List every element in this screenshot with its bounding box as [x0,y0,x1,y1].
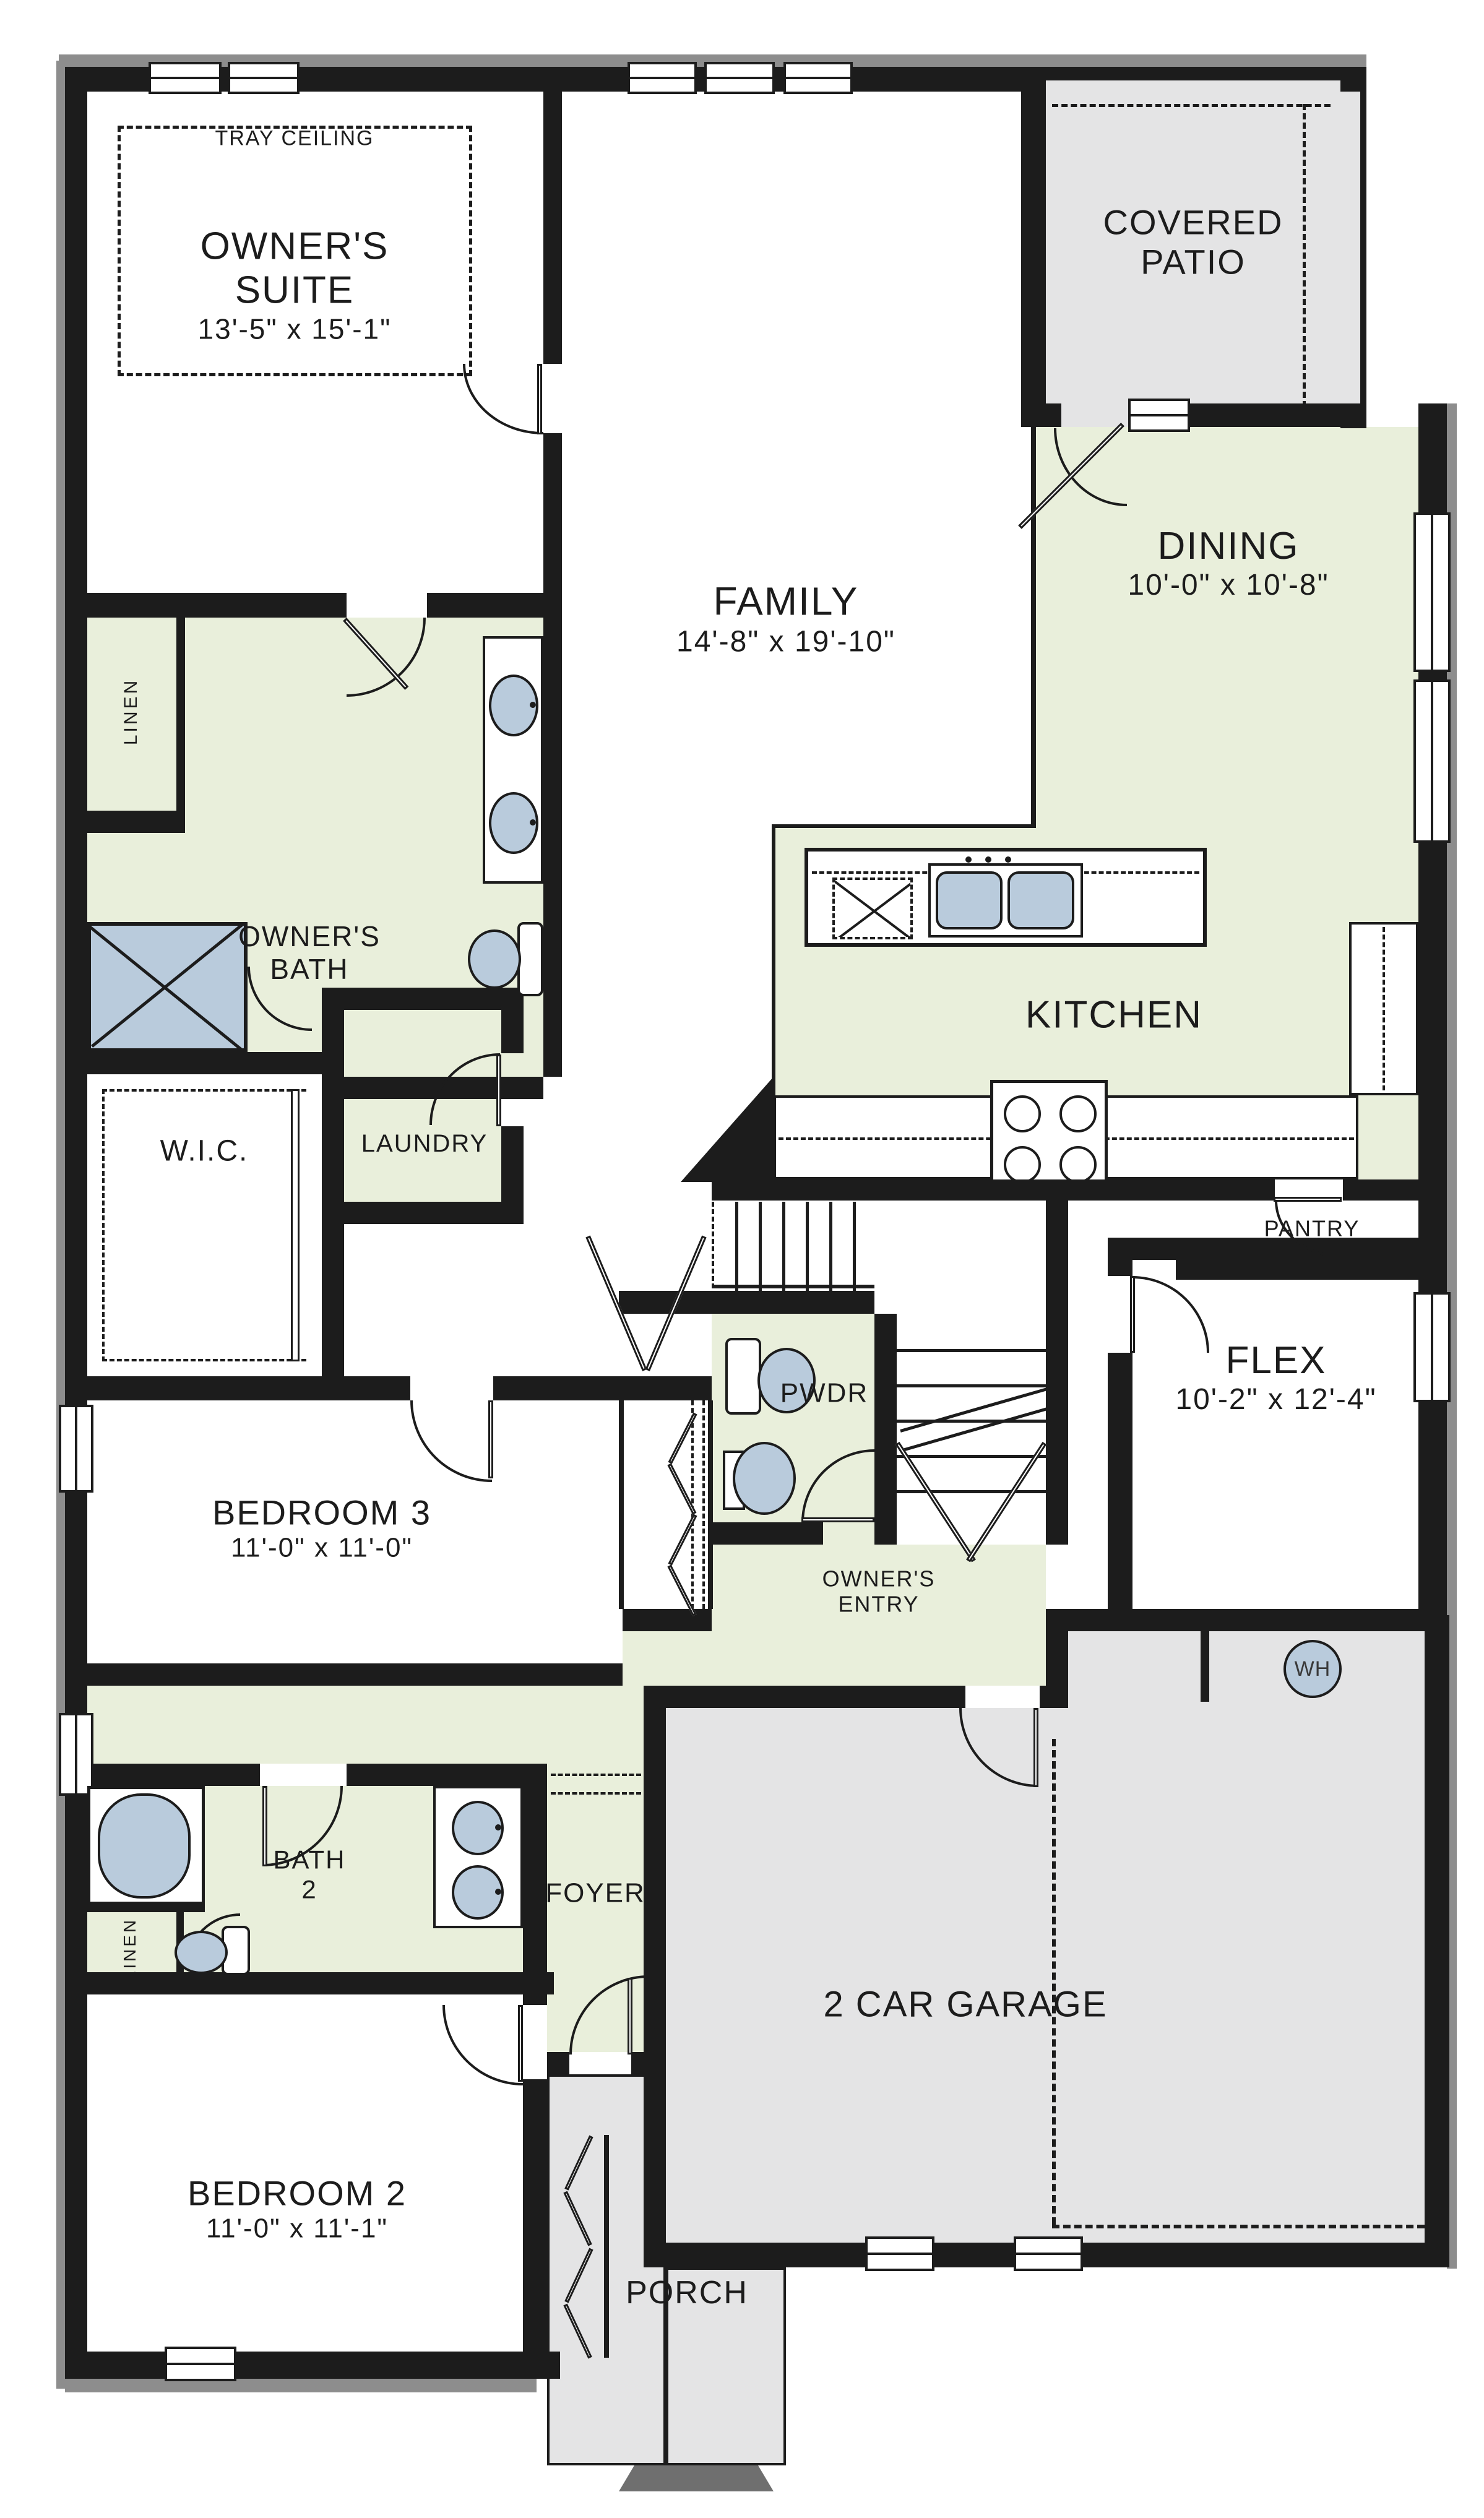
room-label-foyer: FOYER [545,1878,645,1910]
patio-roof-dashed-line [1052,104,1331,107]
door-swing [442,2005,523,2085]
room-dims: 14'-8" x 19'-10" [676,624,895,658]
wall [347,1764,547,1786]
toilet-tank [517,922,543,996]
wall [523,2079,547,2379]
window [1413,679,1451,843]
window [165,2347,236,2381]
wall [772,824,775,1179]
stair-rail [712,1285,874,1288]
faucet-dot [495,1824,501,1830]
shower-x [89,926,245,1052]
room-label-bath2: BATH 2 [274,1845,346,1905]
window [59,1405,93,1493]
wall [1021,403,1061,427]
wall [1108,1353,1132,1615]
window [704,62,775,94]
room-dims: 11'-0" x 11'-1" [188,2214,407,2245]
stair-break-line [900,1407,1050,1452]
wall [631,2052,644,2074]
wall [538,2135,543,2358]
stair-tread [897,1384,1046,1387]
wall [65,2352,560,2379]
room-name: OWNER'S [238,920,381,953]
wall [874,1314,897,1545]
wall [543,92,562,364]
room-label-kitchen: KITCHEN [1025,993,1202,1037]
door-swing [410,1400,492,1482]
wall [619,1400,624,1609]
stair-tread [759,1202,762,1291]
room-label-bedroom3: BEDROOM 3 11'-0" x 11'-0" [212,1493,431,1564]
wall [65,67,87,2379]
wall [1425,1615,1449,2267]
faucet-dot [1005,856,1011,863]
room-dims: 11'-0" x 11'-0" [212,1533,431,1564]
wall [1190,403,1365,427]
shower-x [91,922,247,1048]
wall [712,1179,1275,1201]
room-label-owners-entry: OWNER'S ENTRY [822,1566,936,1618]
wall [774,824,1036,828]
wall [523,1764,547,1994]
door-leaf [1130,1276,1135,1353]
wall [427,593,562,618]
room-dims: 10'-2" x 12'-4" [1175,1382,1376,1416]
cased-opening-dashed [702,1400,705,1609]
window [1014,2236,1083,2271]
window [783,62,853,94]
door-leaf [1033,1708,1038,1787]
door-leaf [801,1517,874,1522]
faucet-dot [985,856,991,863]
room-name: BEDROOM 2 [188,2174,407,2214]
room-name: PATIO [1103,243,1283,282]
sliding-door [1128,399,1190,432]
wall [1108,1260,1132,1276]
wall [712,1522,823,1545]
wall [523,1994,547,2005]
water-heater-icon: WH [1283,1640,1342,1698]
garage-floor [1068,1631,1425,1708]
window [1413,1292,1451,1402]
hall-floor [87,1686,644,1764]
burner-icon [1004,1095,1041,1132]
stair-tread [897,1490,1046,1493]
room-label-garage: 2 CAR GARAGE [823,1985,1107,2026]
room-label-flex: FLEX 10'-2" x 12'-4" [1175,1339,1376,1416]
burner-icon [1059,1095,1097,1132]
window [628,62,697,94]
wall [87,1905,205,1912]
room-name: ENTRY [822,1592,936,1617]
room-name: BEDROOM 3 [212,1493,431,1533]
room-name: SUITE [198,269,392,313]
room-label-linen: LINEN [120,1918,140,1981]
room-name: BATH [238,953,381,986]
door-leaf [488,1400,493,1478]
wall [1046,1609,1447,1631]
wall [681,1077,774,1182]
water-heater-label: WH [1295,1657,1331,1681]
window [865,2236,934,2271]
shower [87,922,248,1052]
wall [604,2135,609,2358]
room-label-dining: DINING 10'-0" x 10'-8" [1128,524,1329,602]
wall [543,593,562,1077]
wall [65,1376,410,1400]
wic-shelf-edge [291,1089,300,1361]
hall-floor [623,1631,712,1686]
cased-opening-dashed [551,1774,641,1776]
window [228,62,300,94]
window [59,1713,93,1796]
room-label-covered-patio: COVERED PATIO [1103,203,1283,283]
sink-basin [936,871,1003,929]
toilet-icon [468,929,521,989]
wall [1021,80,1046,427]
room-name: 2 [274,1875,346,1905]
floor-plan: WH TRAY CEILING OWNER'S SUITE 13'-5" x 1… [0,0,1484,2518]
door-leaf [518,2005,523,2082]
wall [322,1010,344,1376]
wall [543,433,562,593]
garage-floor [666,1708,1425,2243]
wall [501,1010,524,1053]
wall [65,1052,344,1074]
wall [619,1291,874,1314]
door-leaf [262,1786,267,1866]
garage-storage-dashed-outline [1052,1739,1056,2225]
wall [1031,427,1036,826]
wall [1360,67,1366,428]
bathtub-icon [98,1793,191,1899]
wall [322,988,524,1010]
faucet-dot [530,819,536,826]
wall [547,2052,569,2074]
room-label-wic: W.I.C. [160,1134,249,1168]
toilet-tank [725,1338,761,1415]
stair-tread [897,1420,1046,1423]
wall [65,1663,623,1686]
stair-break-line [900,1387,1050,1433]
burner-icon [1004,1146,1041,1183]
faucet-dot [530,702,536,708]
room-name: OWNER'S [198,224,392,268]
stair-tread [782,1202,785,1291]
garage-storage-dashed-outline [1052,2225,1425,2228]
room-label-linen: LINEN [121,678,142,745]
room-label-pantry: PANTRY [1264,1215,1360,1241]
room-name: FLEX [1175,1339,1376,1382]
door-leaf [496,1054,501,1126]
window [149,62,222,94]
porch-step-shadow [619,2465,774,2491]
room-label-family: FAMILY 14'-8" x 19'-10" [676,579,895,659]
room-label-owners-bath: OWNER'S BATH [238,920,381,986]
stair-rail-dashed [712,1202,714,1288]
tray-ceiling-note: TRAY CEILING [215,126,374,150]
wall [65,593,347,618]
wall [1046,1201,1068,1545]
room-name: DINING [1128,524,1329,568]
wall [1021,67,1365,80]
dishwasher-icon [832,877,913,939]
toilet-icon [175,1931,228,1974]
faucet-dot [495,1889,501,1895]
wall [87,811,185,833]
room-name: BATH [274,1845,346,1875]
door-leaf [537,364,542,434]
wall [501,1126,524,1202]
wall [874,1522,897,1545]
stair-tread [853,1202,856,1291]
room-label-owners-suite: OWNER'S SUITE 13'-5" x 15'-1" [198,224,392,345]
room-label-porch: PORCH [626,2275,748,2312]
burner-icon [1059,1146,1097,1183]
counter-dashed-line [1383,927,1385,1090]
room-name: FAMILY [676,579,895,625]
wall [708,1400,713,1609]
sink-basin [1007,871,1074,929]
stair-tread [806,1202,809,1291]
wall [1040,1686,1068,1708]
sink-icon [733,1442,796,1515]
wall [623,1609,712,1631]
stair-tread [897,1349,1046,1352]
room-label-pwdr: PWDR [780,1378,868,1410]
wall [644,1686,965,1708]
room-label-bedroom2: BEDROOM 2 11'-0" x 11'-1" [188,2174,407,2245]
room-dims: 10'-0" x 10'-8" [1128,568,1329,602]
faucet-dot [965,856,972,863]
wall [176,618,185,811]
door-swing [463,364,543,434]
patio-roof-dashed-line [1303,104,1306,407]
wall [322,1202,524,1224]
room-name: COVERED [1103,203,1283,243]
window [1413,512,1451,672]
wic-shelf-dashed [102,1089,306,1361]
stair-tread [897,1455,1046,1458]
wall [1343,1179,1447,1201]
wall [65,1764,260,1786]
wall-shadow [65,2379,537,2392]
stair-tread [829,1202,832,1291]
wall [493,1376,712,1400]
room-name: OWNER'S [822,1566,936,1592]
door-leaf [1274,1197,1342,1202]
cased-opening-dashed [551,1792,641,1795]
wall [1201,1631,1209,1702]
room-dims: 13'-5" x 15'-1" [198,313,392,345]
stair-tread [735,1202,738,1291]
door-leaf [628,1978,632,2054]
room-label-laundry: LAUNDRY [361,1129,488,1158]
